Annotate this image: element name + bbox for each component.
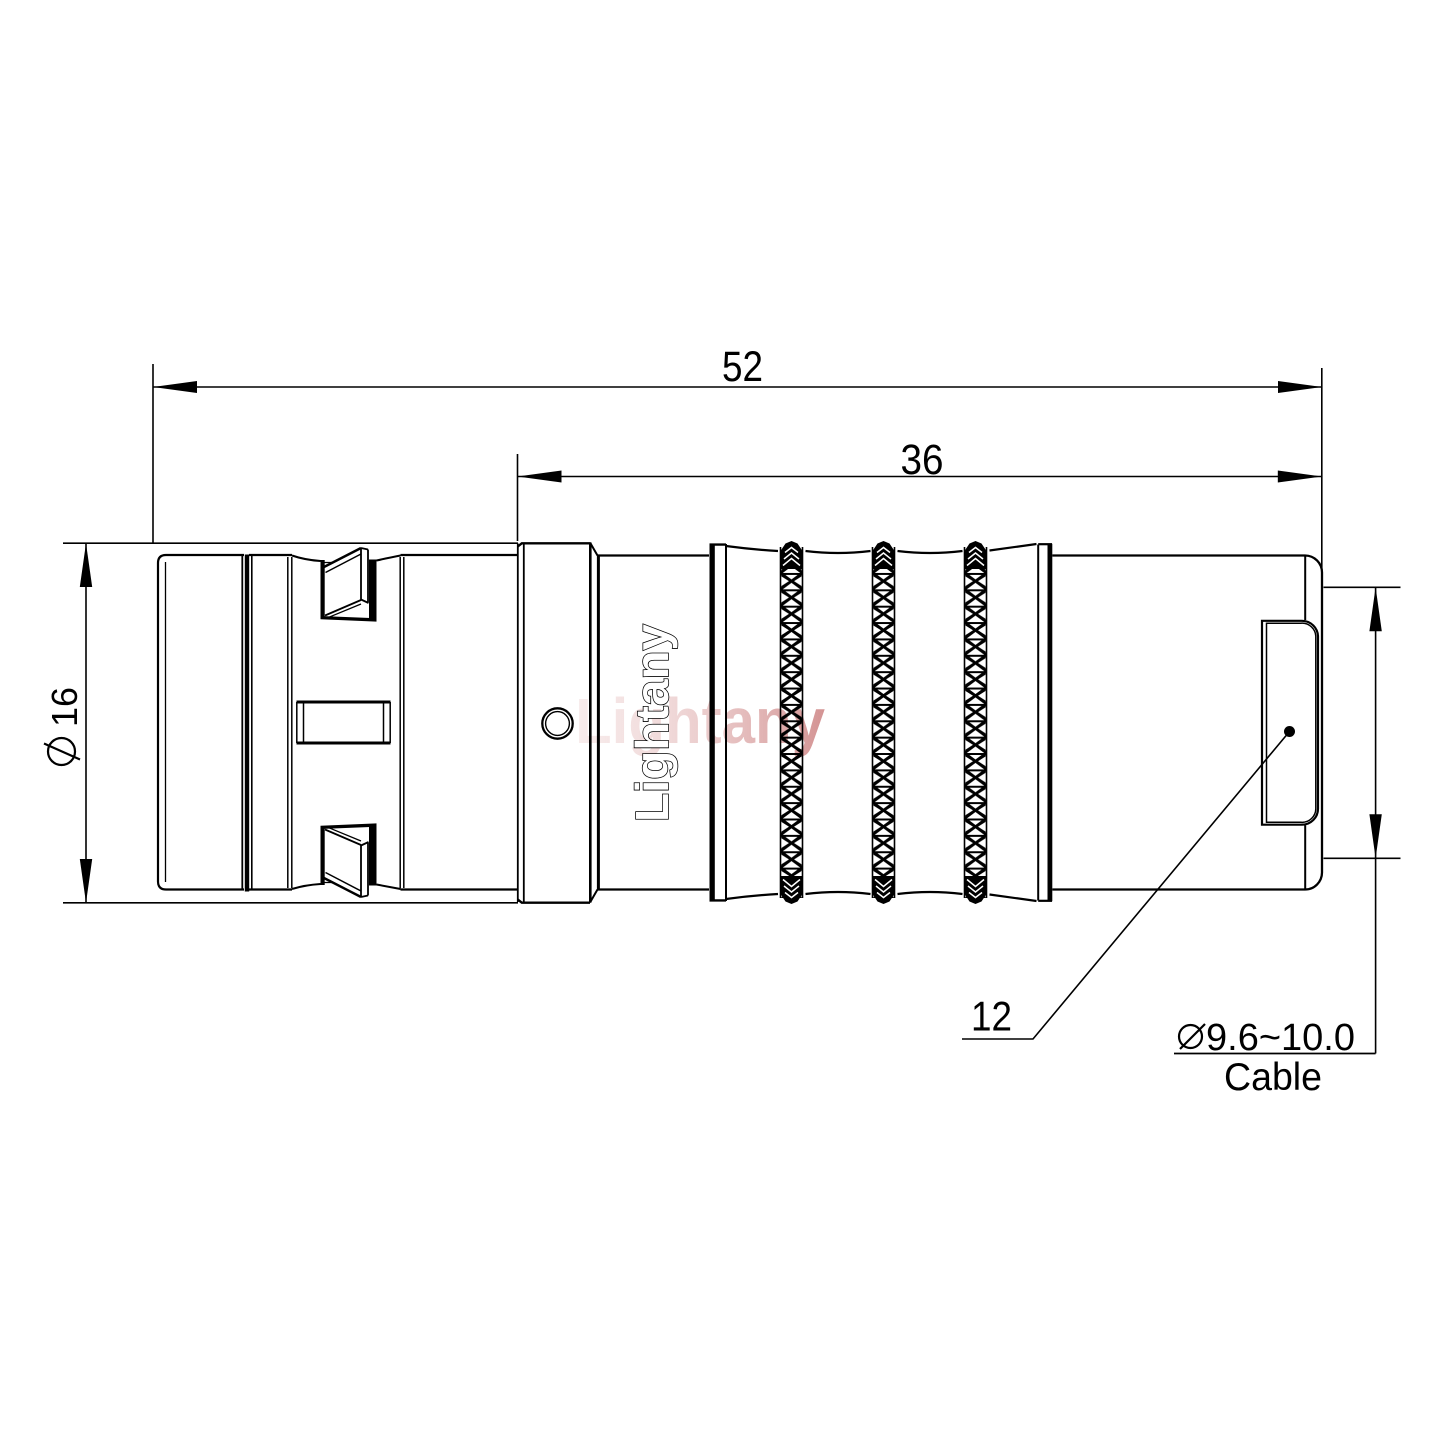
svg-text:16: 16 [44, 687, 85, 727]
svg-text:Cable: Cable [1224, 1056, 1322, 1099]
svg-text:Lightany: Lightany [626, 624, 678, 822]
svg-text:12: 12 [971, 993, 1012, 1040]
svg-text:36: 36 [901, 436, 944, 484]
svg-text:52: 52 [722, 343, 763, 391]
